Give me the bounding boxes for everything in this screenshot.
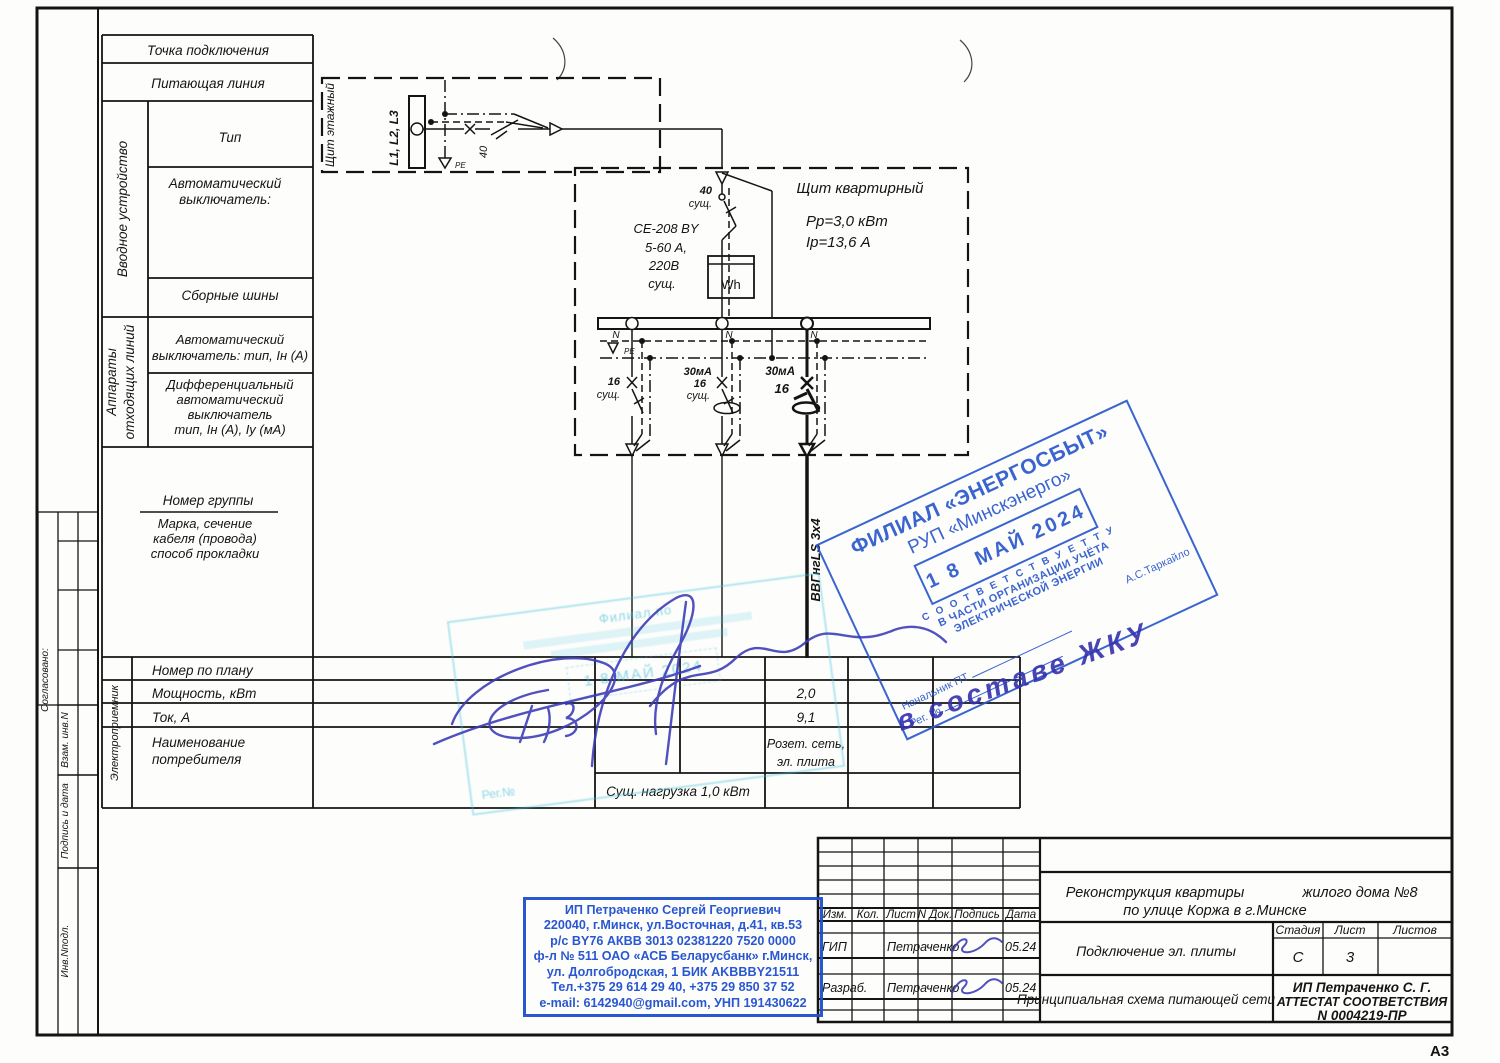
address-stamp-line: Тел.+375 29 614 29 40, +375 29 850 37 52: [526, 980, 820, 995]
svg-text:Дифференциальный: Дифференциальный: [165, 377, 294, 392]
contractor-address-stamp: ИП Петраченко Сергей Георгиевич 220040, …: [523, 897, 823, 1017]
svg-text:Аппараты: Аппараты: [104, 348, 119, 417]
sheets-label: Листов: [1392, 923, 1437, 937]
bus-label: L1, L2, L3: [387, 110, 401, 166]
row-role: Разраб.: [822, 981, 867, 995]
svg-text:Подпись: Подпись: [954, 909, 1000, 921]
svg-text:Мощность, кВт: Мощность, кВт: [152, 686, 256, 701]
svg-text:Наименование: Наименование: [152, 735, 245, 750]
svg-text:Тип: Тип: [219, 130, 242, 145]
svg-text:Дата: Дата: [1004, 909, 1036, 921]
row-role: ГИП: [822, 940, 848, 954]
svg-text:выключатель: выключатель: [188, 407, 273, 422]
svg-text:кабеля (провода): кабеля (провода): [153, 531, 257, 546]
branch1-rating: 16: [608, 376, 621, 388]
row-name: Петраченко: [887, 981, 959, 995]
current-value: Iр=13,6 А: [806, 234, 871, 251]
drawing-sheet: А3 Согласовано: Взам. инв.N Подпись и да…: [0, 0, 1500, 1063]
svg-text:выключатель:: выключатель:: [179, 192, 271, 207]
revision-marks: [553, 38, 972, 82]
project-title: по улице Коржа в г.Минске: [1123, 903, 1306, 919]
svg-text:N Док.: N Док.: [918, 909, 953, 921]
row-date: 05.24: [1005, 940, 1036, 954]
project-title: жилого дома №8: [1301, 885, 1417, 901]
format-label: А3: [1430, 1043, 1449, 1060]
svg-text:способ прокладки: способ прокладки: [151, 546, 259, 561]
title-block-header: Изм. Кол. Лист N Док. Подпись Дата: [823, 909, 1036, 921]
svg-text:Марка, сечение: Марка, сечение: [158, 516, 253, 531]
svg-text:Кол.: Кол.: [857, 909, 880, 921]
wh-meter-label: Wh: [721, 277, 741, 292]
meter-type-label: СЕ-208 BY 5-60 А, 220В сущ.: [633, 221, 699, 291]
pe-label-left: PE: [624, 347, 635, 356]
floor-panel: [322, 78, 722, 172]
branch2-rcd: 30мА: [684, 366, 712, 378]
branch1-note: сущ.: [597, 389, 620, 401]
margin-label-podpis: Подпись и дата: [60, 783, 71, 859]
address-stamp-line: ИП Петраченко Сергей Георгиевич: [526, 903, 820, 918]
svg-text:Точка подключения: Точка подключения: [147, 43, 269, 58]
stage-label: Стадия: [1276, 923, 1322, 937]
faint-stamp-reg: Рег.№: [481, 784, 516, 802]
address-stamp-line: 220040, г.Минск, ул.Восточная, д.41, кв.…: [526, 918, 820, 933]
margin-label-agreed: Согласовано:: [40, 648, 51, 712]
svg-text:5-60 А,: 5-60 А,: [645, 240, 687, 255]
svg-text:Электроприемник: Электроприемник: [109, 684, 121, 781]
svg-text:220В: 220В: [648, 258, 680, 273]
svg-text:Лист: Лист: [885, 909, 916, 921]
scheme-title: Принципиальная схема питающей сети: [1017, 992, 1276, 1007]
svg-text:Номер группы: Номер группы: [163, 493, 254, 508]
svg-text:Автоматический: Автоматический: [168, 176, 282, 191]
cert-line: АТТЕСТАТ СООТВЕТСТВИЯ: [1276, 995, 1448, 1009]
branch2-rating: 16: [694, 378, 707, 390]
title-block-right: Реконструкция квартиры жилого дома №8 по…: [1017, 885, 1448, 1023]
svg-text:автоматический: автоматический: [177, 392, 284, 407]
sheet-label: Лист: [1334, 923, 1366, 937]
svg-text:Номер по плану: Номер по плану: [152, 663, 254, 678]
svg-text:потребителя: потребителя: [152, 752, 241, 767]
svg-text:Изм.: Изм.: [823, 909, 848, 921]
svg-text:СЕ-208 BY: СЕ-208 BY: [633, 221, 699, 236]
address-stamp-line: e-mail: 6142940@gmail.com, УНП 191430622: [526, 996, 820, 1011]
branch3-rcd: 30мА: [765, 366, 795, 378]
svg-text:Питающая линия: Питающая линия: [151, 76, 264, 91]
stage-value: С: [1293, 949, 1304, 966]
address-stamp-line: ф-л № 511 ОАО «АСБ Беларусбанк» г.Минск,: [526, 949, 820, 964]
svg-text:сущ.: сущ.: [648, 276, 676, 291]
floor-pe-label: PE: [455, 161, 466, 170]
apartment-panel: [575, 168, 968, 455]
svg-text:отходящих линий: отходящих линий: [122, 324, 137, 439]
apartment-panel-title: Щит квартирный: [797, 180, 925, 197]
faint-stamp-date: 1 8 МАЙ 2024: [566, 647, 721, 701]
project-title: Реконструкция квартиры: [1066, 885, 1245, 901]
doc-title: Подключение эл. плиты: [1076, 943, 1237, 959]
cert-line: ИП Петраченко С. Г.: [1293, 980, 1431, 995]
svg-text:Автоматический: Автоматический: [175, 332, 284, 347]
sheet-value: 3: [1346, 949, 1355, 966]
title-block-rows: ГИП Петраченко 05.24 Разраб. Петраченко …: [822, 940, 1036, 995]
floor-breaker-rating: 40: [478, 145, 490, 158]
input-breaker-rating: 40: [699, 185, 713, 197]
address-stamp-line: р/с BY76 АКВВ 3013 02381220 7520 0000: [526, 934, 820, 949]
margin-label-vzam: Взам. инв.N: [60, 711, 71, 767]
spec-table-labels: Точка подключения Питающая линия Вводное…: [104, 43, 308, 561]
svg-text:выключатель: тип, Iн (А): выключатель: тип, Iн (А): [152, 348, 308, 363]
svg-text:тип, Iн (А), Iу (мА): тип, Iн (А), Iу (мА): [174, 422, 285, 437]
margin-label-inv: Инв.Nподл.: [60, 925, 71, 978]
branch3-rating: 16: [775, 381, 790, 396]
input-breaker-note: сущ.: [689, 198, 712, 210]
row-name: Петраченко: [887, 940, 959, 954]
branch2-note: сущ.: [687, 390, 710, 402]
svg-text:Сборные шины: Сборные шины: [181, 288, 278, 303]
n-label-left: N: [612, 330, 620, 341]
cert-line: N 0004219-ПР: [1317, 1008, 1407, 1023]
power-value: Рр=3,0 кВт: [806, 213, 888, 230]
svg-text:Вводное устройство: Вводное устройство: [115, 140, 130, 277]
svg-text:Ток, А: Ток, А: [152, 710, 190, 725]
address-stamp-line: ул. Долгобродская, 1 БИК AKBBBY21511: [526, 965, 820, 980]
floor-panel-title: Щит этажный: [323, 83, 337, 167]
